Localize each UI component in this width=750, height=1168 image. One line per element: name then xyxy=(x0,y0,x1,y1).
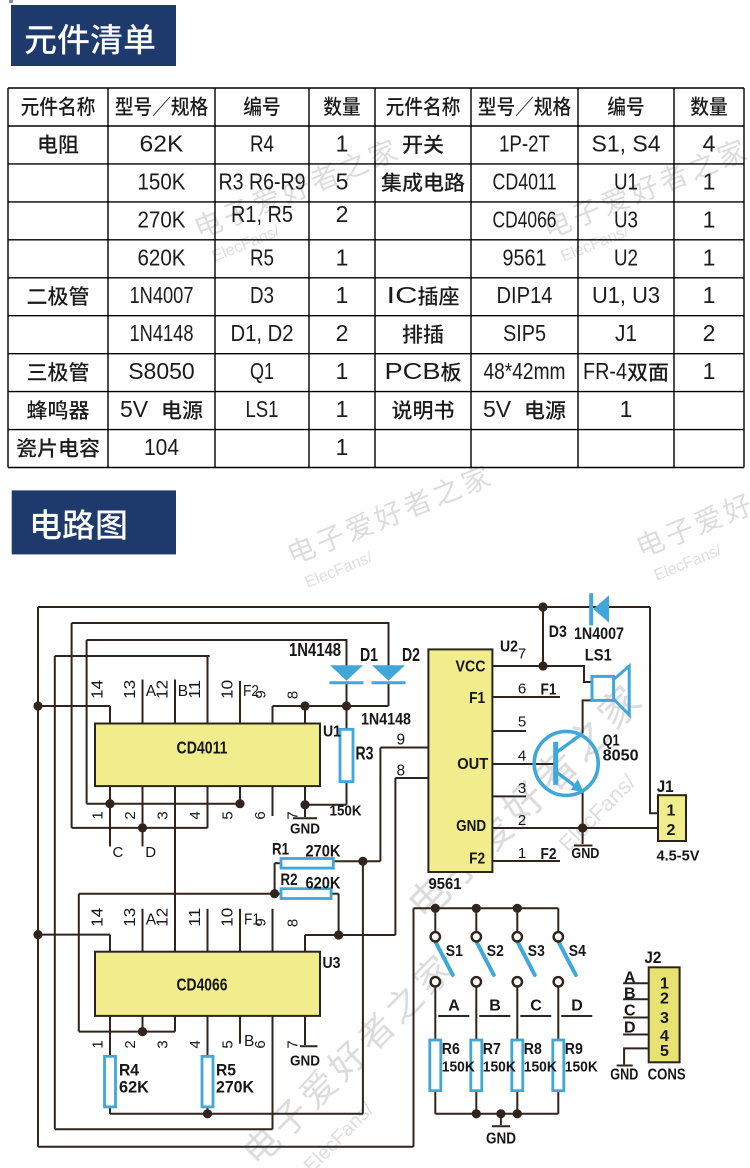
svg-text:GND: GND xyxy=(610,1066,638,1083)
svg-text:DIP14: DIP14 xyxy=(497,282,553,308)
svg-text:U3: U3 xyxy=(614,206,638,232)
svg-text:150K: 150K xyxy=(565,1059,598,1076)
svg-text:B: B xyxy=(624,985,636,1002)
svg-text:150K: 150K xyxy=(524,1059,557,1076)
svg-text:9561: 9561 xyxy=(503,244,547,270)
svg-text:104: 104 xyxy=(144,434,179,460)
svg-text:2: 2 xyxy=(518,812,526,829)
svg-text:14: 14 xyxy=(90,907,107,926)
svg-text:150K: 150K xyxy=(483,1059,516,1076)
svg-text:12: 12 xyxy=(155,908,172,927)
svg-text:1: 1 xyxy=(336,396,349,422)
svg-text:4: 4 xyxy=(703,130,716,156)
svg-text:GND: GND xyxy=(290,1053,320,1070)
svg-text:1: 1 xyxy=(336,434,349,460)
svg-text:3: 3 xyxy=(155,811,172,819)
svg-text:D: D xyxy=(571,998,583,1015)
svg-text:13: 13 xyxy=(122,680,139,699)
svg-text:1: 1 xyxy=(336,358,349,384)
svg-text:6: 6 xyxy=(252,811,269,819)
svg-text:1: 1 xyxy=(90,811,107,819)
svg-text:8: 8 xyxy=(285,691,302,699)
svg-text:1: 1 xyxy=(703,206,716,232)
svg-text:R1, R5: R1, R5 xyxy=(231,201,293,227)
svg-text:R5: R5 xyxy=(250,244,274,270)
svg-text:R1: R1 xyxy=(272,840,289,859)
svg-text:14: 14 xyxy=(90,679,107,698)
svg-text:1N4007: 1N4007 xyxy=(574,624,624,643)
svg-text:1: 1 xyxy=(703,282,716,308)
svg-text:R8: R8 xyxy=(524,1041,542,1058)
svg-text:10: 10 xyxy=(220,907,237,926)
svg-text:150K: 150K xyxy=(330,803,362,820)
svg-text:1: 1 xyxy=(703,168,716,194)
svg-text:SIP5: SIP5 xyxy=(503,320,546,346)
svg-text:5: 5 xyxy=(518,713,526,730)
svg-text:B: B xyxy=(489,998,501,1015)
svg-text:5V: 5V xyxy=(483,396,512,422)
svg-text:D: D xyxy=(145,844,156,861)
svg-text:1: 1 xyxy=(336,244,349,270)
svg-text:5: 5 xyxy=(336,168,349,194)
svg-text:J1: J1 xyxy=(615,320,637,346)
svg-text:1: 1 xyxy=(620,396,633,422)
svg-text:U1, U3: U1, U3 xyxy=(592,282,660,308)
svg-text:FR-4: FR-4 xyxy=(583,358,627,384)
svg-text:GND: GND xyxy=(571,845,599,862)
svg-text:2: 2 xyxy=(667,822,676,839)
svg-text:1: 1 xyxy=(336,130,349,156)
svg-text:620K: 620K xyxy=(306,873,342,892)
svg-text:4: 4 xyxy=(518,747,526,764)
svg-text:62K: 62K xyxy=(119,1079,149,1097)
svg-text:6: 6 xyxy=(518,680,526,697)
svg-text:D1: D1 xyxy=(360,645,378,665)
svg-text:270K: 270K xyxy=(216,1079,254,1097)
svg-text:R4: R4 xyxy=(119,1062,140,1080)
svg-text:B: B xyxy=(244,1033,254,1050)
svg-text:LS1: LS1 xyxy=(246,396,279,422)
svg-text:IC: IC xyxy=(387,282,418,308)
svg-text:5V: 5V xyxy=(120,396,149,422)
svg-text:1: 1 xyxy=(667,803,676,820)
svg-text:10: 10 xyxy=(220,679,237,698)
svg-text:4: 4 xyxy=(187,1040,204,1048)
svg-text:R6: R6 xyxy=(442,1041,460,1058)
svg-text:48*42mm: 48*42mm xyxy=(484,358,566,384)
svg-text:CONS: CONS xyxy=(648,1066,686,1083)
svg-text:4: 4 xyxy=(187,811,204,819)
svg-text:LS1: LS1 xyxy=(585,646,612,665)
svg-text:1: 1 xyxy=(90,1040,107,1048)
svg-text:3: 3 xyxy=(660,1010,669,1027)
svg-text:1: 1 xyxy=(336,282,349,308)
svg-text:1N4148: 1N4148 xyxy=(361,710,411,729)
svg-text:U1: U1 xyxy=(323,724,341,741)
svg-text:150K: 150K xyxy=(442,1059,475,1076)
svg-text:U3: U3 xyxy=(323,955,341,972)
svg-text:1N4007: 1N4007 xyxy=(130,282,194,308)
svg-text:S8050: S8050 xyxy=(128,358,195,384)
svg-text:S2: S2 xyxy=(487,943,504,960)
svg-text:A: A xyxy=(448,998,460,1015)
svg-text:S3: S3 xyxy=(528,943,545,960)
svg-text:C: C xyxy=(113,844,124,861)
svg-text:A: A xyxy=(146,683,157,700)
svg-text:620K: 620K xyxy=(138,244,187,270)
svg-text:13: 13 xyxy=(122,908,139,927)
svg-text:270K: 270K xyxy=(306,842,342,861)
svg-text:F1: F1 xyxy=(469,690,485,707)
svg-text:2: 2 xyxy=(660,991,669,1008)
svg-text:C: C xyxy=(624,1002,636,1019)
svg-text:D3: D3 xyxy=(549,622,567,641)
svg-text:5: 5 xyxy=(220,811,237,819)
svg-text:R9: R9 xyxy=(565,1041,583,1058)
svg-text:U1: U1 xyxy=(614,168,638,194)
svg-text:1N4148: 1N4148 xyxy=(289,640,341,660)
svg-text:3: 3 xyxy=(518,780,526,797)
svg-text:F2: F2 xyxy=(469,851,485,868)
svg-text:1: 1 xyxy=(518,845,526,862)
svg-text:D3: D3 xyxy=(250,282,274,308)
svg-text:C: C xyxy=(530,998,542,1015)
svg-text:GND: GND xyxy=(290,820,320,837)
svg-text:2: 2 xyxy=(122,1040,139,1048)
svg-text:1P-2T: 1P-2T xyxy=(499,130,550,156)
svg-text:U2: U2 xyxy=(614,244,638,270)
svg-text:J1: J1 xyxy=(657,777,674,796)
svg-text:U2: U2 xyxy=(500,638,518,655)
svg-text:270K: 270K xyxy=(138,206,187,232)
svg-text:R2: R2 xyxy=(281,870,298,889)
svg-text:CD4011: CD4011 xyxy=(493,168,557,194)
svg-text:1: 1 xyxy=(703,358,716,384)
svg-text:9561: 9561 xyxy=(429,876,462,893)
svg-text:3: 3 xyxy=(155,1040,172,1048)
svg-text:F1: F1 xyxy=(244,912,260,929)
svg-text:F2: F2 xyxy=(243,683,259,700)
svg-text:J2: J2 xyxy=(644,948,661,967)
svg-text:2: 2 xyxy=(122,811,139,819)
svg-text:A: A xyxy=(624,969,636,986)
svg-text:VCC: VCC xyxy=(456,659,486,676)
svg-text:R3: R3 xyxy=(356,744,374,764)
svg-text:D1, D2: D1, D2 xyxy=(231,320,294,346)
svg-text:11: 11 xyxy=(187,680,204,699)
svg-text:D2: D2 xyxy=(402,645,420,665)
svg-text:R4: R4 xyxy=(250,130,274,156)
svg-text:8: 8 xyxy=(285,919,302,927)
svg-text:R3 R6-R9: R3 R6-R9 xyxy=(219,168,306,194)
svg-text:12: 12 xyxy=(155,680,172,699)
svg-text:8: 8 xyxy=(397,763,406,780)
svg-text:R5: R5 xyxy=(216,1062,236,1080)
svg-text:CD4066: CD4066 xyxy=(493,206,557,232)
svg-text:F2: F2 xyxy=(541,846,557,863)
svg-text:PCB: PCB xyxy=(385,358,441,384)
svg-text:2: 2 xyxy=(336,320,349,346)
svg-text:S1, S4: S1, S4 xyxy=(592,130,661,156)
svg-text:B: B xyxy=(178,683,188,700)
svg-text:S1: S1 xyxy=(446,943,463,960)
svg-text:F1: F1 xyxy=(541,682,557,699)
svg-text:9: 9 xyxy=(397,732,406,749)
svg-text:150K: 150K xyxy=(138,168,187,194)
svg-text:CD4011: CD4011 xyxy=(177,738,228,758)
svg-text:8050: 8050 xyxy=(603,748,639,765)
svg-text:62K: 62K xyxy=(140,130,185,156)
svg-text:2: 2 xyxy=(336,201,349,227)
svg-text:1: 1 xyxy=(703,244,716,270)
svg-text:OUT: OUT xyxy=(457,756,488,773)
svg-text:D: D xyxy=(624,1019,636,1036)
svg-text:7: 7 xyxy=(285,1040,302,1048)
svg-text:1N4148: 1N4148 xyxy=(130,320,194,346)
svg-text:6: 6 xyxy=(252,1040,269,1048)
svg-text:5: 5 xyxy=(220,1040,237,1048)
svg-text:S4: S4 xyxy=(569,943,586,960)
svg-text:GND: GND xyxy=(456,818,486,835)
svg-text:4.5-5V: 4.5-5V xyxy=(657,848,700,865)
svg-text:CD4066: CD4066 xyxy=(177,974,228,994)
svg-text:7: 7 xyxy=(518,646,526,663)
svg-text:11: 11 xyxy=(187,908,204,927)
svg-text:7: 7 xyxy=(285,811,302,819)
svg-text:5: 5 xyxy=(660,1043,669,1060)
svg-text:2: 2 xyxy=(703,320,716,346)
svg-text:Q1: Q1 xyxy=(250,358,274,384)
svg-text:GND: GND xyxy=(486,1131,516,1148)
svg-text:A: A xyxy=(146,912,157,929)
svg-text:R7: R7 xyxy=(483,1041,501,1058)
